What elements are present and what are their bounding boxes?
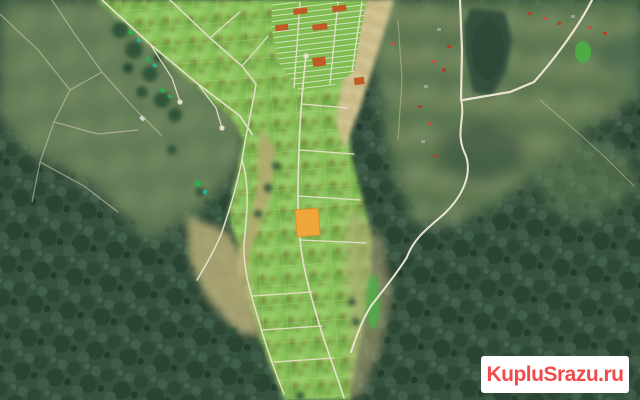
watermark: KupluSrazu.ru [481,356,629,393]
watermark-text: KupluSrazu.ru [486,363,623,387]
map-canvas [0,0,640,400]
highlighted-plot[interactable] [295,208,320,237]
bright-green-patch-east [575,41,591,63]
satellite-map-image: KupluSrazu.ru [0,0,640,400]
reserved-plot [354,77,365,85]
forest-patch-east [438,122,522,182]
reserved-plot [312,57,326,68]
pond-deep-water [472,20,504,80]
clearing-east [535,138,635,218]
